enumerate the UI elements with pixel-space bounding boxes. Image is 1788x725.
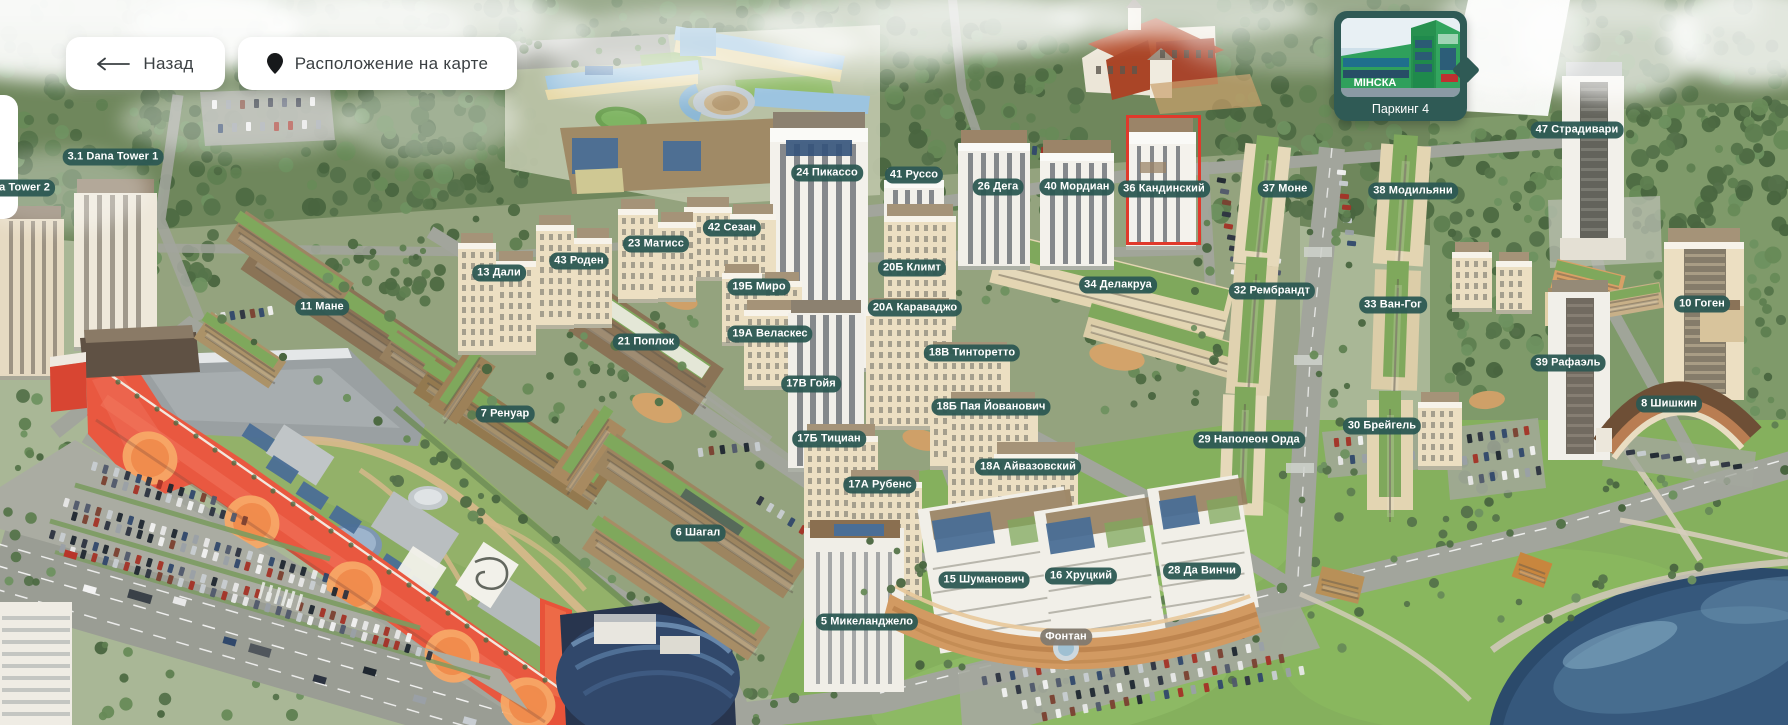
svg-text:МІНСКА: МІНСКА — [1354, 77, 1397, 89]
